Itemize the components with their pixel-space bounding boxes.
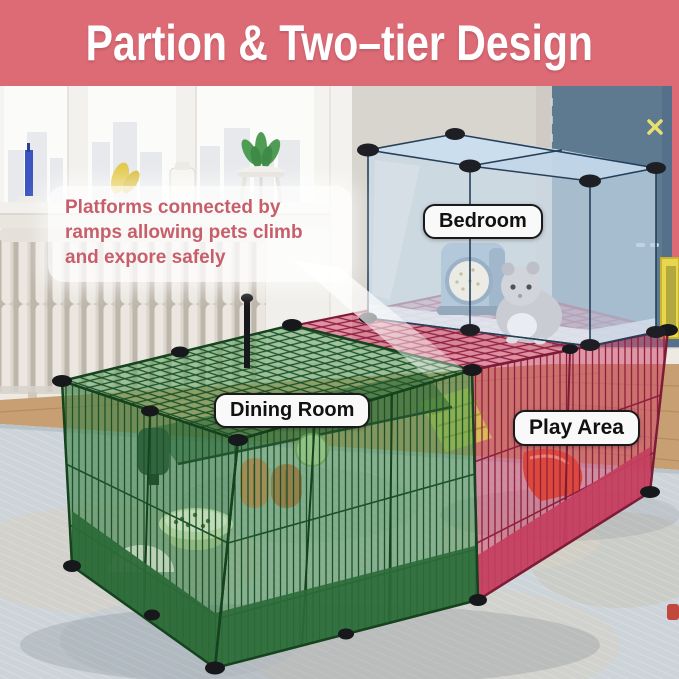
bedroom-cube <box>357 128 666 351</box>
callout-line-2: ramps allowing pets climb <box>65 220 352 245</box>
callout-bubble: Platforms connected by ramps allowing pe… <box>48 186 352 282</box>
pink-edge-strip <box>672 80 679 288</box>
callout-line-3: and expore safely <box>65 245 352 270</box>
label-dining-room: Dining Room <box>214 393 370 428</box>
product-image: Partion & Two–tier Design Platforms conn… <box>0 0 679 679</box>
page-title: Partion & Two–tier Design <box>86 14 593 72</box>
title-banner: Partion & Two–tier Design <box>0 0 679 86</box>
label-bedroom: Bedroom <box>423 204 543 239</box>
label-play-area: Play Area <box>513 410 640 446</box>
pet-toy <box>667 604 679 620</box>
callout-line-1: Platforms connected by <box>65 195 352 220</box>
room-scene <box>0 0 679 679</box>
